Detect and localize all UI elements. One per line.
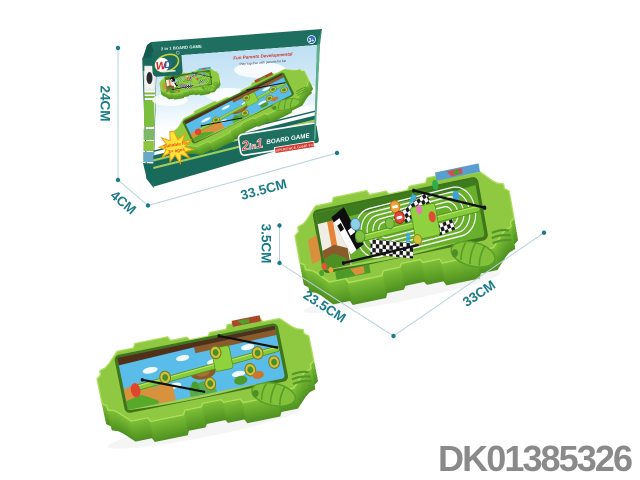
svg-text:D: D — [164, 60, 172, 71]
svg-text:3+: 3+ — [309, 38, 315, 44]
